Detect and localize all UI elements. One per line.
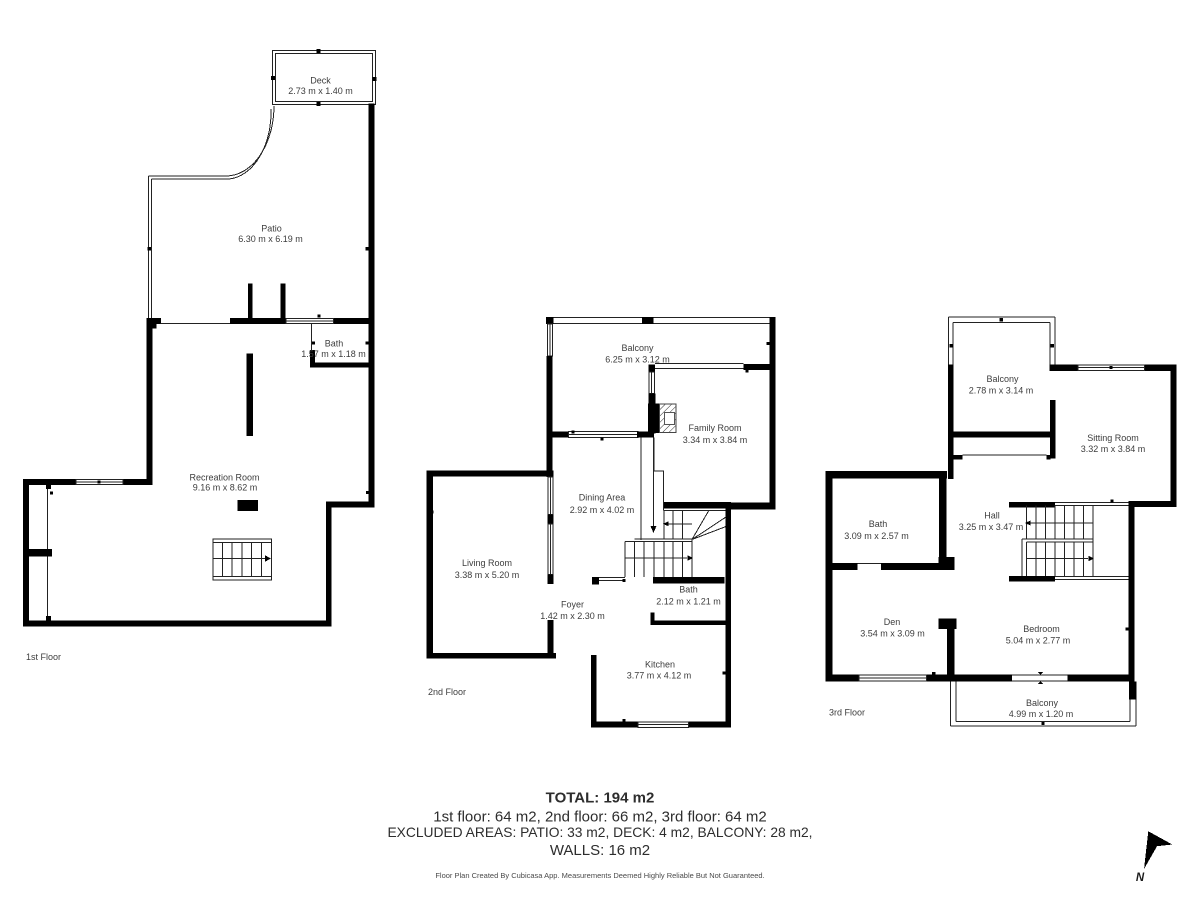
svg-text:Living Room: Living Room — [462, 558, 512, 568]
svg-text:3rd Floor: 3rd Floor — [829, 708, 865, 718]
svg-text:Hall: Hall — [984, 511, 1000, 521]
svg-text:3.34 m x 3.84 m: 3.34 m x 3.84 m — [683, 435, 748, 445]
svg-text:3.54 m x 3.09 m: 3.54 m x 3.09 m — [860, 629, 925, 639]
svg-text:Sitting Room: Sitting Room — [1087, 433, 1139, 443]
svg-text:Recreation Room: Recreation Room — [189, 473, 259, 483]
svg-text:2.92 m x 4.02 m: 2.92 m x 4.02 m — [570, 505, 635, 515]
svg-text:2.78 m x 3.14 m: 2.78 m x 3.14 m — [969, 386, 1034, 396]
svg-text:Bedroom: Bedroom — [1023, 624, 1060, 634]
svg-text:Den: Den — [884, 617, 901, 627]
svg-text:Balcony: Balcony — [986, 374, 1019, 384]
svg-text:3.25 m x 3.47 m: 3.25 m x 3.47 m — [959, 522, 1024, 532]
svg-text:1.42 m x 2.30 m: 1.42 m x 2.30 m — [540, 611, 605, 621]
svg-text:Bath: Bath — [869, 519, 888, 529]
svg-text:2nd Floor: 2nd Floor — [428, 687, 466, 697]
svg-text:TOTAL: 194 m2: TOTAL: 194 m2 — [546, 790, 655, 807]
svg-text:5.04 m x 2.77 m: 5.04 m x 2.77 m — [1006, 636, 1071, 646]
svg-text:Floor Plan Created By Cubicasa: Floor Plan Created By Cubicasa App. Meas… — [435, 871, 764, 880]
svg-text:Kitchen: Kitchen — [645, 660, 675, 670]
svg-text:Foyer: Foyer — [561, 600, 584, 610]
svg-text:3.77 m x 4.12 m: 3.77 m x 4.12 m — [627, 671, 692, 681]
svg-text:3.38 m x 5.20 m: 3.38 m x 5.20 m — [455, 570, 520, 580]
svg-text:Dining Area: Dining Area — [579, 493, 626, 503]
svg-text:3.32 m x 3.84 m: 3.32 m x 3.84 m — [1081, 444, 1146, 454]
svg-text:N: N — [1136, 872, 1145, 884]
svg-text:1st floor: 64 m2, 2nd floor: 6: 1st floor: 64 m2, 2nd floor: 66 m2, 3rd … — [433, 809, 767, 826]
svg-text:Bath: Bath — [325, 339, 344, 349]
svg-text:9.16 m x 8.62 m: 9.16 m x 8.62 m — [193, 483, 258, 493]
svg-text:Balcony: Balcony — [1026, 698, 1059, 708]
svg-text:4.99 m x 1.20 m: 4.99 m x 1.20 m — [1009, 709, 1074, 719]
svg-text:Bath: Bath — [679, 585, 698, 595]
svg-text:1.57 m x 1.18 m: 1.57 m x 1.18 m — [301, 349, 366, 359]
svg-text:1st Floor: 1st Floor — [26, 652, 61, 662]
svg-text:2.12 m x 1.21 m: 2.12 m x 1.21 m — [656, 597, 721, 607]
svg-text:EXCLUDED AREAS: PATIO: 33 m2,: EXCLUDED AREAS: PATIO: 33 m2, DECK: 4 m2… — [387, 825, 812, 840]
svg-text:WALLS: 16 m2: WALLS: 16 m2 — [550, 842, 650, 859]
svg-text:3.09 m x 2.57 m: 3.09 m x 2.57 m — [844, 531, 909, 541]
svg-text:2.73 m x 1.40 m: 2.73 m x 1.40 m — [288, 86, 353, 96]
svg-text:Balcony: Balcony — [621, 343, 654, 353]
svg-text:6.30 m x 6.19 m: 6.30 m x 6.19 m — [238, 234, 303, 244]
svg-text:Patio: Patio — [261, 224, 282, 234]
svg-text:Deck: Deck — [310, 76, 331, 86]
svg-text:Family Room: Family Room — [688, 423, 741, 433]
